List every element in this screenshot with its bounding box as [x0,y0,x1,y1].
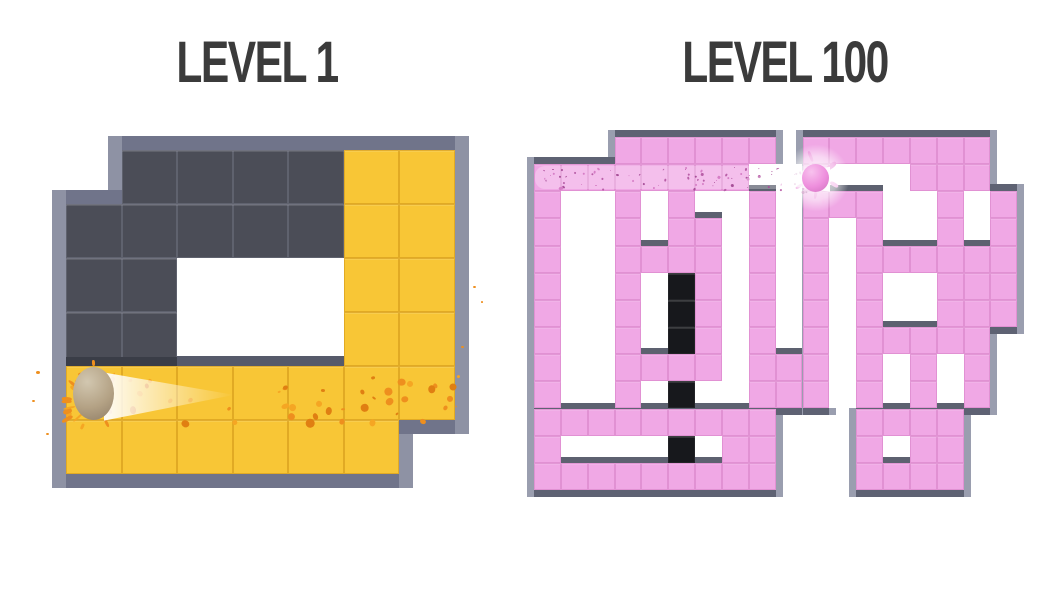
maze-cell[interactable] [964,164,991,191]
maze-cell[interactable] [588,409,615,436]
maze-cell[interactable] [803,246,830,273]
maze-cell[interactable] [534,246,561,273]
maze-cell[interactable] [937,137,964,164]
paint-splatter[interactable] [545,180,546,182]
maze-hole[interactable] [776,246,803,273]
maze-cell[interactable] [856,218,883,245]
maze-cell[interactable] [749,300,776,327]
maze-cell[interactable] [749,381,776,408]
hole-shadow[interactable] [588,457,615,463]
hole-shadow[interactable] [695,212,722,218]
maze-hole[interactable] [883,354,910,381]
maze-cell[interactable] [749,137,776,164]
maze-hole[interactable] [722,354,749,381]
maze-cell[interactable] [561,463,588,490]
maze-hole[interactable] [722,300,749,327]
maze-cell[interactable] [910,327,937,354]
hole-shadow[interactable] [883,240,910,246]
maze-hole[interactable] [883,164,910,191]
maze-cell[interactable] [910,354,937,381]
maze-cell[interactable] [856,354,883,381]
maze-hole[interactable] [829,381,856,408]
maze-board-level-100[interactable] [0,0,1052,592]
maze-cell[interactable] [695,463,722,490]
maze-cell[interactable] [856,327,883,354]
maze-cell[interactable] [534,191,561,218]
hole-shadow[interactable] [937,403,964,409]
maze-hole[interactable] [829,354,856,381]
hole-shadow[interactable] [722,403,749,409]
maze-hole[interactable] [722,327,749,354]
maze-hole[interactable] [829,327,856,354]
maze-hole[interactable] [937,354,964,381]
maze-hole[interactable] [588,327,615,354]
maze-hole[interactable] [910,191,937,218]
maze-cell[interactable] [910,409,937,436]
maze-cell[interactable] [990,300,1017,327]
maze-cell[interactable] [615,409,642,436]
maze-cell[interactable] [964,300,991,327]
hole-shadow[interactable] [615,457,642,463]
maze-cell[interactable] [856,463,883,490]
maze-cell[interactable] [937,273,964,300]
maze-cell[interactable] [937,463,964,490]
maze-cell[interactable] [749,436,776,463]
maze-cell[interactable] [534,273,561,300]
maze-cell[interactable] [615,137,642,164]
maze-cell[interactable] [990,218,1017,245]
maze-cell-obstacle[interactable] [668,327,695,354]
maze-cell[interactable] [910,463,937,490]
maze-cell[interactable] [749,273,776,300]
maze-cell[interactable] [695,273,722,300]
hole-shadow[interactable] [776,348,803,354]
maze-cell-obstacle[interactable] [668,273,695,300]
maze-cell[interactable] [910,137,937,164]
maze-hole[interactable] [829,273,856,300]
hole-shadow[interactable] [695,457,722,463]
maze-cell[interactable] [615,381,642,408]
maze-hole[interactable] [910,273,937,300]
maze-cell[interactable] [937,246,964,273]
maze-cell[interactable] [803,218,830,245]
maze-cell[interactable] [668,191,695,218]
maze-cell[interactable] [641,463,668,490]
paint-splatter[interactable] [734,167,735,168]
maze-cell[interactable] [990,273,1017,300]
maze-hole[interactable] [722,218,749,245]
maze-cell[interactable] [722,409,749,436]
maze-cell[interactable] [883,137,910,164]
maze-hole[interactable] [722,191,749,218]
maze-cell[interactable] [803,273,830,300]
maze-cell[interactable] [695,327,722,354]
game-screenshot: LEVEL 1 LEVEL 100 [0,0,1052,592]
maze-cell[interactable] [856,381,883,408]
maze-cell[interactable] [695,246,722,273]
maze-cell[interactable] [668,463,695,490]
maze-cell[interactable] [641,409,668,436]
maze-cell[interactable] [856,246,883,273]
paint-splatter[interactable] [779,188,782,191]
maze-cell[interactable] [910,164,937,191]
maze-cell[interactable] [695,300,722,327]
maze-cell[interactable] [641,246,668,273]
maze-cell[interactable] [722,137,749,164]
maze-cell[interactable] [937,164,964,191]
hole-shadow[interactable] [641,348,668,354]
maze-hole[interactable] [561,246,588,273]
maze-cell[interactable] [803,381,830,408]
maze-cell[interactable] [668,354,695,381]
hole-shadow[interactable] [856,185,883,191]
maze-cell[interactable] [856,436,883,463]
hole-shadow[interactable] [910,321,937,327]
maze-cell[interactable] [937,409,964,436]
maze-cell[interactable] [615,300,642,327]
hole-shadow[interactable] [883,321,910,327]
maze-cell[interactable] [668,246,695,273]
maze-cell[interactable] [722,436,749,463]
maze-hole[interactable] [964,191,991,218]
maze-hole[interactable] [829,218,856,245]
hole-shadow[interactable] [964,240,991,246]
maze-cell[interactable] [883,327,910,354]
maze-cell[interactable] [910,246,937,273]
maze-hole[interactable] [776,218,803,245]
maze-hole[interactable] [776,273,803,300]
maze-cell[interactable] [964,137,991,164]
maze-hole[interactable] [561,354,588,381]
maze-cell[interactable] [964,381,991,408]
maze-cell[interactable] [776,354,803,381]
maze-cell[interactable] [561,409,588,436]
maze-cell[interactable] [964,354,991,381]
maze-cell[interactable] [776,381,803,408]
maze-hole[interactable] [883,273,910,300]
player-ball[interactable] [802,164,829,192]
maze-hole[interactable] [588,354,615,381]
maze-cell[interactable] [964,246,991,273]
maze-cell[interactable] [749,409,776,436]
paint-splatter[interactable] [653,187,655,189]
maze-cell[interactable] [615,191,642,218]
maze-cell[interactable] [990,191,1017,218]
maze-cell[interactable] [615,327,642,354]
maze-cell[interactable] [937,327,964,354]
maze-hole[interactable] [883,191,910,218]
maze-cell[interactable] [615,246,642,273]
maze-cell[interactable] [695,354,722,381]
maze-cell[interactable] [856,300,883,327]
paint-splatter[interactable] [739,173,742,176]
maze-cell[interactable] [749,463,776,490]
maze-cell[interactable] [883,246,910,273]
maze-cell-obstacle[interactable] [668,300,695,327]
maze-cell[interactable] [803,354,830,381]
maze-cell[interactable] [615,218,642,245]
maze-hole[interactable] [561,273,588,300]
paint-splatter[interactable] [591,173,594,176]
hole-shadow[interactable] [561,457,588,463]
maze-hole[interactable] [588,191,615,218]
hole-shadow[interactable] [641,240,668,246]
maze-cell[interactable] [534,463,561,490]
maze-hole[interactable] [641,300,668,327]
maze-cell[interactable] [937,218,964,245]
maze-cell[interactable] [803,300,830,327]
hole-shadow[interactable] [588,403,615,409]
maze-cell[interactable] [615,273,642,300]
hole-shadow[interactable] [883,403,910,409]
maze-cell[interactable] [803,327,830,354]
maze-hole[interactable] [561,327,588,354]
maze-cell[interactable] [534,409,561,436]
maze-cell[interactable] [749,354,776,381]
maze-hole[interactable] [588,273,615,300]
hole-shadow[interactable] [641,403,668,409]
hole-shadow[interactable] [641,457,668,463]
maze-hole[interactable] [829,246,856,273]
maze-cell[interactable] [695,137,722,164]
maze-cell[interactable] [856,137,883,164]
maze-cell[interactable] [856,409,883,436]
maze-cell[interactable] [668,137,695,164]
maze-cell[interactable] [910,381,937,408]
maze-cell[interactable] [937,191,964,218]
hole-shadow[interactable] [695,403,722,409]
maze-cell[interactable] [883,463,910,490]
paint-splatter[interactable] [552,169,554,170]
maze-cell[interactable] [749,218,776,245]
maze-cell[interactable] [534,218,561,245]
maze-cell[interactable] [856,191,883,218]
maze-cell[interactable] [695,409,722,436]
maze-hole[interactable] [561,218,588,245]
maze-cell[interactable] [937,300,964,327]
maze-hole[interactable] [722,246,749,273]
maze-cell[interactable] [937,436,964,463]
maze-cell[interactable] [883,409,910,436]
maze-cell-obstacle[interactable] [668,381,695,408]
maze-cell[interactable] [668,409,695,436]
maze-hole[interactable] [722,273,749,300]
maze-cell[interactable] [641,354,668,381]
maze-hole[interactable] [641,191,668,218]
maze-hole[interactable] [776,300,803,327]
maze-cell[interactable] [749,191,776,218]
maze-hole[interactable] [641,273,668,300]
maze-cell[interactable] [695,218,722,245]
paint-splatter[interactable] [616,173,619,175]
maze-cell[interactable] [615,463,642,490]
maze-cell[interactable] [856,273,883,300]
maze-cell[interactable] [990,246,1017,273]
maze-cell[interactable] [534,381,561,408]
maze-cell[interactable] [910,436,937,463]
maze-cell[interactable] [641,137,668,164]
maze-cell[interactable] [588,463,615,490]
maze-hole[interactable] [561,191,588,218]
hole-shadow[interactable] [561,403,588,409]
paint-splatter[interactable] [758,168,759,169]
maze-cell[interactable] [964,327,991,354]
maze-hole[interactable] [588,300,615,327]
maze-cell[interactable] [615,354,642,381]
maze-hole[interactable] [588,218,615,245]
maze-cell[interactable] [668,218,695,245]
maze-hole[interactable] [829,300,856,327]
maze-cell[interactable] [722,463,749,490]
hole-shadow[interactable] [910,240,937,246]
maze-hole[interactable] [588,246,615,273]
maze-cell[interactable] [749,246,776,273]
maze-cell[interactable] [749,327,776,354]
maze-cell[interactable] [534,354,561,381]
maze-cell[interactable] [964,273,991,300]
hole-shadow[interactable] [883,457,910,463]
maze-cell[interactable] [534,300,561,327]
maze-cell-obstacle[interactable] [668,436,695,463]
maze-hole[interactable] [561,300,588,327]
maze-cell[interactable] [534,436,561,463]
maze-cell[interactable] [534,327,561,354]
